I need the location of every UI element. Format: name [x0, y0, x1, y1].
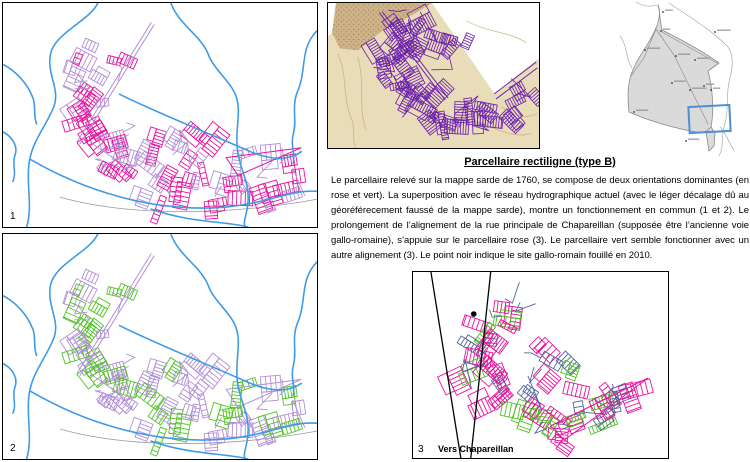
map-panel-2: 2: [2, 233, 318, 460]
parcel-band: [438, 282, 654, 457]
gallo-roman-site-dot: [471, 311, 477, 317]
panel-number-label: 2: [10, 443, 16, 454]
figure-page: 1 2 Parcellaire rectiligne (type B) Le p…: [0, 0, 750, 462]
region-overview-drawing: [616, 0, 750, 156]
figure-title-text: Parcellaire rectiligne (type B): [464, 156, 616, 168]
map-2-drawing: [3, 234, 317, 459]
figure-caption-text: Le parcellaire relevé sur la mappe sarde…: [331, 174, 749, 263]
parcel-band: [60, 38, 306, 224]
figure-title: Parcellaire rectiligne (type B): [331, 156, 749, 168]
region-overview-map: [616, 0, 750, 156]
map-panel-3: 3 Vers Chapareillan: [412, 271, 669, 459]
vers-chapareillan-label: Vers Chapareillan: [438, 444, 514, 454]
parcel-band: [60, 269, 306, 456]
commune-outline: [628, 5, 719, 132]
map-panel-1: 1: [2, 2, 318, 228]
panel-number-label: 1: [10, 211, 16, 222]
sarde-map-drawing: [328, 3, 539, 148]
caption-column: Parcellaire rectiligne (type B) Le parce…: [331, 156, 749, 263]
sarde-map-panel: [327, 2, 540, 149]
panel-number-label: 3: [418, 444, 424, 455]
map-3-drawing: [413, 272, 668, 458]
map-1-drawing: [3, 3, 317, 227]
